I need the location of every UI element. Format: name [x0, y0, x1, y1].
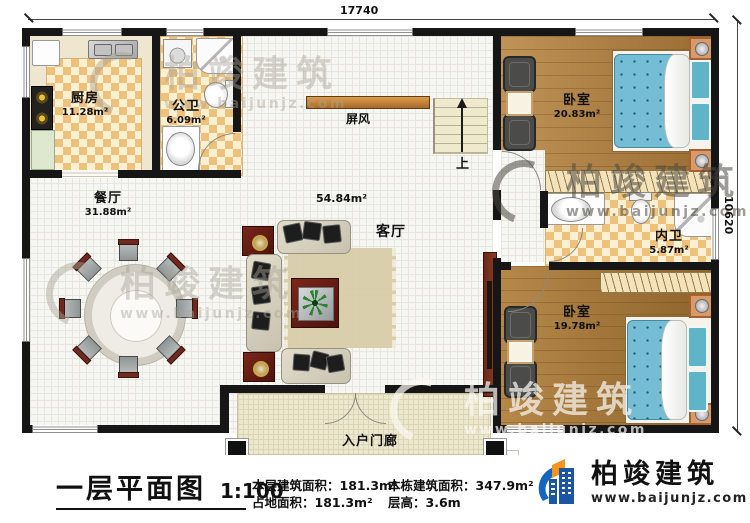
dimension-top-label: 17740	[340, 4, 378, 17]
stat-label: 层高：	[388, 495, 426, 510]
sofa-pillow	[251, 261, 272, 282]
stat-floor-area: 本层建筑面积：181.3m²	[252, 477, 398, 494]
window-dining-bottom	[32, 425, 98, 433]
label-bedroom-top: 卧室 20.83m²	[542, 94, 612, 120]
window-bedroom-bottom	[506, 425, 564, 433]
wall-living-bottom-left	[220, 385, 325, 393]
stat-land-area: 占地面积：181.3m²	[252, 494, 398, 511]
brand-text-group: 柏竣建筑 www.baijunjz.com	[591, 461, 748, 505]
side-cabinet	[243, 352, 275, 382]
brand-logo: 柏竣建筑 www.baijunjz.com	[534, 455, 748, 511]
wall-kitchen-bottom-b	[118, 170, 241, 178]
washing-machine	[163, 39, 192, 68]
sink-inner-bath	[551, 197, 591, 222]
kitchen-fridge	[31, 130, 55, 170]
label-kitchen: 厨房 11.28m²	[50, 92, 120, 118]
bed-blanket	[664, 54, 690, 148]
label-inner-bath: 内卫 5.87m²	[634, 230, 704, 256]
wall-bedroom-left-b	[493, 190, 501, 220]
dining-chair	[176, 299, 195, 318]
public-bath-area: 6.09m²	[158, 115, 214, 127]
folding-screen	[306, 96, 430, 109]
stats-column-1: 本层建筑面积：181.3m² 占地面积：181.3m²	[252, 477, 398, 511]
dimension-right-label: 10620	[722, 196, 735, 234]
kitchen-door-threshold	[62, 170, 118, 178]
stat-value: 181.3m²	[315, 495, 373, 510]
bedroom-chair	[504, 360, 537, 398]
window-living-top	[327, 28, 413, 36]
public-bath-name: 公卫	[158, 100, 214, 115]
window-bedroom-top	[575, 28, 643, 36]
kitchen-name: 厨房	[50, 92, 120, 107]
dimension-tick	[709, 13, 719, 23]
title-underline	[56, 508, 246, 510]
plan-title-group: 一层平面图 1:100	[56, 467, 284, 506]
stat-value: 347.9m²	[476, 478, 534, 493]
window-bath-top	[166, 28, 204, 36]
kitchen-sink	[88, 40, 138, 59]
wall-connector	[220, 385, 229, 433]
wall-inner-bath-left	[540, 191, 548, 228]
stat-value: 3.6m	[426, 495, 461, 510]
bedroom-chair	[503, 114, 536, 151]
wall-inner-bath-bottom-stub	[501, 262, 511, 270]
stairs-up-label: 上	[456, 153, 469, 172]
wall-kitchen-bottom-a	[22, 170, 62, 178]
wall-inner-bath-bottom	[549, 262, 719, 270]
sofa-pillow	[326, 354, 346, 374]
sofa-pillow	[251, 285, 271, 305]
dining-name: 餐厅	[68, 192, 148, 207]
bedroom-bottom-area: 19.78m²	[542, 321, 612, 333]
wardrobe-bedroom-bottom	[600, 272, 713, 293]
kitchen-area: 11.28m²	[50, 107, 120, 119]
sofa-pillow	[292, 353, 310, 371]
dining-chair	[119, 356, 138, 375]
stat-label: 占地面积：	[252, 495, 315, 510]
window-dining-left	[22, 258, 30, 342]
porch-label: 入户门廊	[342, 430, 398, 449]
bed-pillow	[687, 370, 708, 412]
brand-name: 柏竣建筑	[591, 461, 748, 488]
side-cabinet	[242, 226, 274, 256]
dimension-tick	[24, 13, 34, 23]
living-name-label: 客厅	[376, 221, 406, 241]
bedroom-bottom-name: 卧室	[542, 306, 612, 321]
brand-logo-icon	[534, 455, 584, 511]
sofa-pillow	[302, 221, 322, 241]
window-inner-bath-right	[711, 208, 719, 260]
wall-bedroom-left-a	[493, 36, 501, 150]
wardrobe-bedroom-top	[545, 170, 713, 193]
window-kitchen-top	[62, 28, 122, 36]
sofa-pillow	[282, 222, 303, 243]
inner-bath-name: 内卫	[634, 230, 704, 245]
stairs-arrow-line	[461, 106, 463, 152]
bed-pillow	[690, 60, 711, 100]
stat-label: 本层建筑面积：	[252, 478, 340, 493]
title-bar: 一层平面图 1:100 本层建筑面积：181.3m² 占地面积：181.3m² …	[0, 455, 750, 523]
floor-plan-sheet: 17740 10620	[0, 0, 750, 523]
dining-chair	[119, 242, 138, 261]
dimension-right-line	[737, 21, 738, 433]
coffee-table	[291, 278, 339, 328]
stat-building-area: 本栋建筑面积：347.9m²	[388, 477, 534, 494]
screen-label: 屏风	[346, 110, 370, 127]
stat-floor-height: 层高：3.6m	[388, 494, 534, 511]
stats-column-2: 本栋建筑面积：347.9m² 层高：3.6m	[388, 477, 534, 511]
bedroom-top-area: 20.83m²	[542, 109, 612, 121]
sofa-pillow	[251, 311, 271, 331]
brand-url: www.baijunjz.com	[591, 492, 748, 505]
bed-blanket	[661, 320, 687, 420]
bedroom-side-table	[507, 340, 534, 364]
bed-pillow	[690, 102, 711, 142]
wall-public-bath-right	[233, 36, 241, 132]
wall-living-bottom-right	[385, 385, 497, 393]
sink-public-bath	[166, 132, 195, 166]
living-area-label: 54.84m²	[316, 192, 367, 205]
stat-label: 本栋建筑面积：	[388, 478, 476, 493]
label-public-bath: 公卫 6.09m²	[158, 100, 214, 126]
stairs-arrow-head	[457, 98, 467, 108]
dining-chair	[62, 299, 81, 318]
label-bedroom-bottom: 卧室 19.78m²	[542, 306, 612, 332]
plant	[302, 290, 328, 316]
wall-bedroom-left-c	[493, 258, 501, 433]
window-kitchen-left	[22, 46, 30, 98]
shower-public-bath	[196, 38, 235, 74]
dimension-top-line	[28, 19, 714, 20]
sofa-pillow	[322, 224, 342, 244]
label-dining: 餐厅 31.88m²	[68, 192, 148, 218]
plan-title: 一层平面图	[56, 467, 206, 506]
dining-area: 31.88m²	[68, 207, 148, 219]
kitchen-corner-cabinet	[32, 40, 60, 66]
bedroom-chair	[503, 56, 536, 93]
bedroom-side-table	[506, 91, 533, 116]
bed-pillow	[687, 326, 708, 368]
bedroom-top-name: 卧室	[542, 94, 612, 109]
inner-bath-area: 5.87m²	[634, 245, 704, 257]
